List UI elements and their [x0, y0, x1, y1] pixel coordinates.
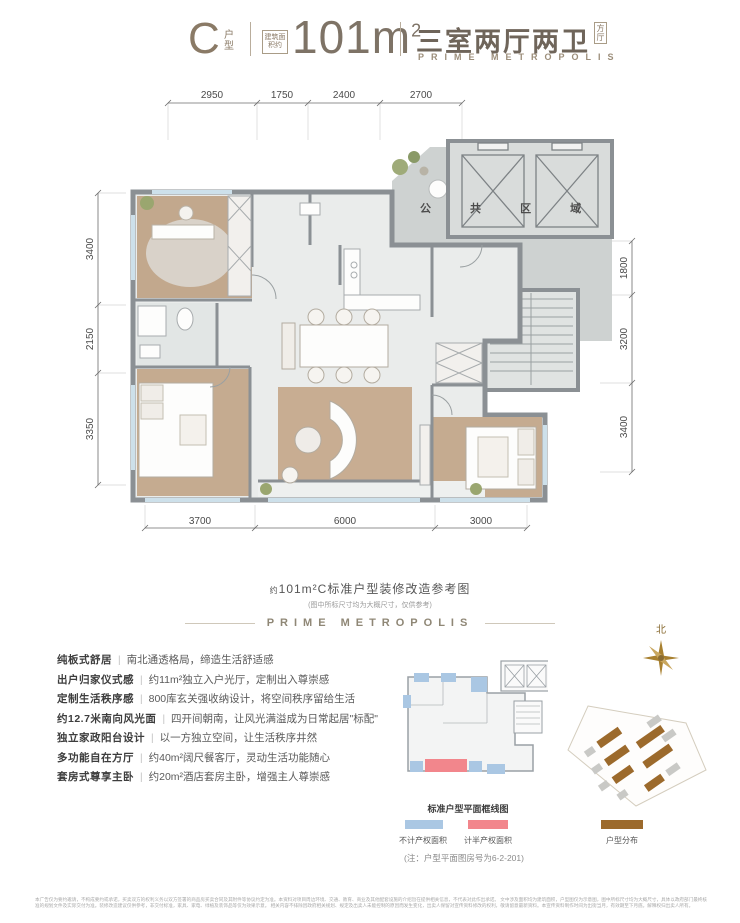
caption-title: 约101m²C标准户型装修改造参考图: [0, 580, 740, 597]
dim-left-1: 3400: [85, 237, 96, 260]
feature-row: 纯板式舒居|南北通透格局，缔造生活舒适感: [57, 652, 387, 672]
disclaimer: 本广告仅为要约邀请，不构成要约或承诺，买卖双方的权利义务以双方签署的商品房买卖合…: [35, 897, 707, 910]
feature-divider: |: [140, 753, 143, 764]
dim-bottom-1: 3700: [189, 516, 212, 527]
brand-text: PRIME METROPOLIS: [267, 617, 474, 629]
coffee-table: [295, 427, 321, 453]
feature-divider: |: [118, 655, 121, 666]
plant: [140, 196, 154, 210]
feature-label: 约12.7米南向风光面: [57, 711, 156, 726]
floorplan-drawing: 2950 1750 2400 2700 3700 6000 3000 3400 …: [0, 85, 740, 555]
dim-left-2: 2150: [85, 327, 96, 350]
balcony-floor: [258, 481, 485, 497]
public-area-label: 公 共 区 域: [420, 201, 599, 215]
layout-tag: 方厅: [594, 22, 607, 44]
room-number-note: (注：户型平面图房号为6-2-201): [404, 852, 524, 864]
feature-row: 套房式尊享主卧|约20m²酒店套房主卧，增强主人尊崇感: [57, 769, 387, 789]
dim-top-3: 2400: [333, 90, 356, 101]
plant: [408, 151, 420, 163]
tv-console: [420, 425, 430, 485]
feature-desc: 800库玄关强收纳设计，将空间秩序留给生活: [149, 691, 356, 706]
unit-letter: C: [188, 14, 220, 64]
feature-row: 约12.7米南向风光面|四开间朝南，让风光满溢成为日常起居"标配": [57, 711, 387, 731]
dim-top-2: 1750: [271, 90, 294, 101]
dim-bottom-3: 3000: [470, 516, 493, 527]
feature-label: 出户归家仪式感: [57, 672, 134, 687]
brand-rule-right: [485, 623, 555, 624]
feature-desc: 约40m²阔尺餐客厅，灵动生活功能随心: [149, 750, 330, 765]
legend-label-red: 计半产权面积: [464, 835, 512, 846]
legend-swatch-blue: [405, 820, 443, 829]
feature-divider: |: [140, 772, 143, 783]
core-mini: [501, 661, 548, 691]
study-wardrobe: [228, 196, 251, 296]
brand-wordmark: PRIME METROPOLIS: [418, 52, 621, 62]
blanket: [180, 415, 206, 445]
plant: [260, 483, 272, 495]
legend-label-blue: 不计产权面积: [399, 835, 447, 846]
master-closet: [436, 343, 482, 383]
header-divider: [250, 22, 251, 56]
caption-block: 约101m²C标准户型装修改造参考图 (图中所标尺寸均为大概尺寸，仅供参考) P…: [0, 580, 740, 629]
feature-desc: 约20m²酒店套房主卧，增强主人尊崇感: [149, 769, 330, 784]
compass-star-icon: [643, 640, 679, 676]
feature-label: 套房式尊享主卧: [57, 769, 134, 784]
red-area-mini: [425, 759, 467, 772]
disclaimer-line: 本广告仅为要约邀请，不构成要约或承诺，买卖双方的权利义务以双方签署的商品房买卖合…: [35, 897, 499, 902]
feature-label: 纯板式舒居: [57, 652, 112, 667]
feature-label: 定制生活秩序感: [57, 691, 134, 706]
compass: 北: [638, 622, 684, 684]
header: C 户型 建筑面积约 101m2 三室两厅两卫 方厅 PRIME METROPO…: [0, 8, 740, 68]
feature-divider: |: [140, 675, 143, 686]
disclaimer-line: 相关内容不排除因政府相关规划、规定及出卖人未能控制的原因而发生变化，出卖人保留对…: [271, 903, 694, 908]
feature-label: 多功能自在方厅: [57, 750, 134, 765]
unit-label: 户型: [224, 30, 236, 52]
island: [282, 323, 295, 369]
sink: [300, 203, 320, 215]
floorplan-svg: 2950 1750 2400 2700 3700 6000 3000 3400 …: [0, 85, 740, 555]
dim-bottom-2: 6000: [334, 516, 357, 527]
bedroom2: [139, 383, 213, 477]
brand-rule-left: [185, 623, 255, 624]
caption-subtitle: (图中所标尺寸均为大概尺寸，仅供参考): [0, 600, 740, 610]
north-label: 北: [656, 624, 666, 636]
feature-desc: 约11m²独立入户光厅，定制出入尊崇感: [149, 672, 330, 687]
dim-right-3: 3400: [619, 415, 630, 438]
feature-row: 定制生活秩序感|800库玄关强收纳设计，将空间秩序留给生活: [57, 691, 387, 711]
header-divider2: [400, 22, 401, 56]
feature-row: 多功能自在方厅|约40m²阔尺餐客厅，灵动生活功能随心: [57, 750, 387, 770]
caption-brand: PRIME METROPOLIS: [0, 617, 740, 629]
feature-desc: 四开间朝南，让风光满溢成为日常起居"标配": [171, 711, 378, 726]
dim-top-1: 2950: [201, 90, 224, 101]
plant: [470, 483, 482, 495]
feature-row: 独立家政阳台设计|以一方独立空间，让生活秩序井然: [57, 730, 387, 750]
feature-label: 独立家政阳台设计: [57, 730, 145, 745]
seat: [429, 180, 447, 198]
plant: [392, 159, 408, 175]
dim-right-1: 1800: [619, 256, 630, 279]
key-plan-diagram: [383, 643, 548, 798]
feature-divider: |: [140, 694, 143, 705]
stone: [420, 167, 429, 176]
dim-right-2: 3200: [619, 327, 630, 350]
compass-svg: 北: [638, 622, 684, 684]
site-plan-svg: [566, 688, 734, 810]
feature-divider: |: [162, 714, 165, 725]
key-plan-title: 标准户型平面框线图: [388, 802, 548, 815]
legend-label-brown: 户型分布: [606, 835, 638, 846]
stairs-mini: [514, 701, 542, 733]
feature-desc: 南北通透格局，缔造生活舒适感: [127, 652, 274, 667]
feature-row: 出户归家仪式感|约11m²独立入户光厅，定制出入尊崇感: [57, 672, 387, 692]
floorplan-poster: C 户型 建筑面积约 101m2 三室两厅两卫 方厅 PRIME METROPO…: [0, 0, 740, 923]
blanket: [478, 437, 508, 477]
desk-chair: [179, 206, 193, 220]
feature-divider: |: [151, 733, 154, 744]
key-plan-svg: [383, 643, 548, 798]
area-value: 101m2: [292, 10, 422, 64]
area-badge: 建筑面积约: [262, 30, 288, 54]
legend-swatch-red: [468, 820, 508, 829]
legend-swatch-brown: [601, 820, 643, 829]
site-plan: [566, 688, 734, 810]
feature-list: 纯板式舒居|南北通透格局，缔造生活舒适感 出户归家仪式感|约11m²独立入户光厅…: [57, 652, 387, 789]
dim-left-3: 3350: [85, 417, 96, 440]
dim-top-4: 2700: [410, 90, 433, 101]
feature-desc: 以一方独立空间，让生活秩序井然: [160, 730, 318, 745]
